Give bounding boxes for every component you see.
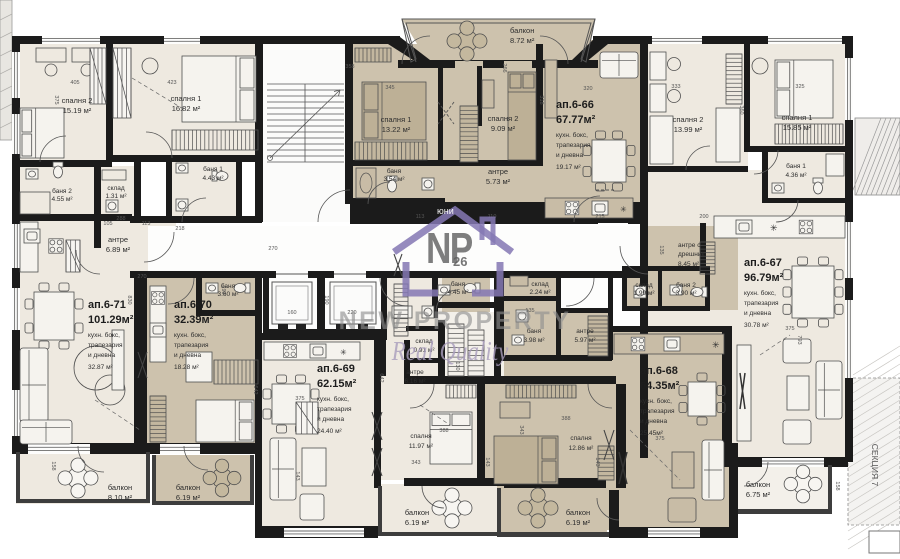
svg-text:160: 160 — [287, 310, 296, 316]
svg-text:4.36 м²: 4.36 м² — [785, 172, 807, 179]
svg-text:375: 375 — [655, 436, 664, 442]
svg-text:32.39м²: 32.39м² — [174, 314, 214, 326]
svg-text:баня 2: баня 2 — [676, 281, 696, 289]
svg-text:642: 642 — [378, 373, 384, 382]
svg-text:32.87 м²: 32.87 м² — [88, 364, 114, 371]
svg-text:антре: антре — [488, 167, 508, 176]
svg-text:24.40 м²: 24.40 м² — [317, 428, 343, 435]
svg-text:✳: ✳ — [340, 348, 347, 357]
svg-text:и дневна: и дневна — [744, 310, 771, 317]
svg-text:6.19 м²: 6.19 м² — [176, 493, 201, 502]
svg-text:642: 642 — [252, 385, 258, 394]
svg-text:26: 26 — [453, 254, 467, 269]
svg-text:190: 190 — [323, 295, 329, 304]
svg-text:375: 375 — [295, 396, 304, 402]
svg-text:склад: склад — [635, 282, 653, 289]
svg-text:67.77м²: 67.77м² — [556, 114, 596, 126]
svg-text:13.99 м²: 13.99 м² — [674, 125, 703, 134]
svg-text:ап.6-67: ап.6-67 — [744, 257, 782, 269]
svg-text:6.19 м²: 6.19 м² — [566, 518, 591, 527]
svg-text:баня: баня — [451, 280, 466, 288]
svg-text:4.43 м²: 4.43 м² — [202, 175, 224, 182]
svg-text:62.15м²: 62.15м² — [317, 378, 357, 390]
svg-text:8.45 м²: 8.45 м² — [678, 261, 700, 268]
svg-text:19.17 м²: 19.17 м² — [556, 164, 582, 171]
svg-text:трапезария: трапезария — [317, 406, 352, 413]
svg-text:антре: антре — [576, 328, 594, 335]
svg-text:ап.6-68: ап.6-68 — [640, 365, 678, 377]
svg-text:12.86 м²: 12.86 м² — [569, 445, 595, 452]
svg-text:360: 360 — [738, 105, 744, 114]
svg-text:трапезария: трапезария — [640, 408, 675, 415]
svg-text:8.72 м²: 8.72 м² — [510, 36, 535, 45]
svg-text:333: 333 — [671, 84, 680, 90]
svg-text:склад: склад — [107, 185, 125, 192]
svg-text:423: 423 — [167, 80, 176, 86]
svg-text:3.54 м²: 3.54 м² — [383, 176, 405, 183]
svg-text:345: 345 — [385, 85, 394, 91]
svg-text:NEW PROPERTY: NEW PROPERTY — [339, 307, 572, 335]
svg-text:375: 375 — [53, 95, 59, 104]
svg-text:юни: юни — [437, 206, 454, 216]
svg-text:балкон: балкон — [746, 480, 770, 489]
svg-text:15.85 м²: 15.85 м² — [783, 123, 812, 132]
svg-text:кухн. бокс,: кухн. бокс, — [317, 395, 349, 403]
svg-text:баня: баня — [387, 167, 402, 175]
svg-text:балкон: балкон — [510, 26, 534, 35]
svg-text:6.16 м²: 6.16 м² — [404, 378, 426, 385]
svg-text:5.97 м²: 5.97 м² — [574, 337, 596, 344]
svg-text:балкон: балкон — [108, 483, 132, 492]
svg-text:✳: ✳ — [620, 205, 627, 214]
svg-text:113: 113 — [142, 221, 151, 227]
svg-text:ап.6-71: ап.6-71 — [88, 299, 126, 311]
svg-text:218: 218 — [175, 226, 184, 232]
svg-text:ап.6-69: ап.6-69 — [317, 363, 355, 375]
svg-text:4.55 м²: 4.55 м² — [51, 196, 73, 203]
svg-text:358: 358 — [345, 64, 354, 70]
svg-text:1.31 м²: 1.31 м² — [105, 193, 127, 200]
svg-text:антре с: антре с — [678, 242, 701, 249]
svg-text:343: 343 — [518, 425, 524, 434]
svg-text:8.10 м²: 8.10 м² — [108, 493, 133, 502]
svg-text:и дневна: и дневна — [640, 418, 667, 425]
svg-text:830: 830 — [126, 295, 132, 304]
svg-text:трапезария: трапезария — [744, 300, 779, 307]
svg-text:793: 793 — [796, 335, 802, 344]
svg-text:325: 325 — [795, 84, 804, 90]
svg-text:9.09 м²: 9.09 м² — [491, 124, 516, 133]
svg-text:215: 215 — [595, 214, 604, 220]
svg-text:105: 105 — [103, 221, 112, 227]
svg-text:270: 270 — [268, 246, 277, 252]
svg-text:190: 190 — [220, 285, 226, 294]
svg-text:баня 2: баня 2 — [52, 187, 72, 195]
svg-text:балкон: балкон — [566, 508, 590, 517]
svg-text:143: 143 — [294, 471, 300, 480]
svg-text:270: 270 — [137, 274, 146, 280]
svg-text:и дневна: и дневна — [88, 352, 115, 359]
svg-text:343: 343 — [411, 460, 420, 466]
svg-text:266: 266 — [501, 63, 507, 72]
svg-text:и дневна: и дневна — [317, 416, 344, 423]
svg-text:158: 158 — [50, 461, 56, 470]
svg-text:143: 143 — [484, 457, 490, 466]
svg-text:спалня 1: спалня 1 — [171, 94, 202, 103]
svg-text:спалня 2: спалня 2 — [673, 115, 704, 124]
svg-text:антре: антре — [406, 369, 424, 376]
svg-text:405: 405 — [70, 80, 79, 86]
svg-text:388: 388 — [439, 428, 448, 434]
svg-text:16.82 м²: 16.82 м² — [172, 104, 201, 113]
svg-text:ап.6-66: ап.6-66 — [556, 99, 594, 111]
svg-text:баня 1: баня 1 — [203, 165, 223, 173]
svg-text:6.75 м²: 6.75 м² — [746, 490, 771, 499]
svg-text:320: 320 — [583, 86, 592, 92]
svg-text:3.98 м²: 3.98 м² — [523, 337, 545, 344]
svg-text:30.78 м²: 30.78 м² — [744, 322, 770, 329]
svg-text:склад: склад — [531, 281, 549, 288]
svg-text:6.89 м²: 6.89 м² — [106, 245, 131, 254]
svg-text:375: 375 — [785, 326, 794, 332]
svg-text:и дневна: и дневна — [556, 152, 583, 159]
svg-text:кухн. бокс,: кухн. бокс, — [744, 289, 776, 297]
svg-text:318: 318 — [538, 95, 544, 104]
svg-text:158: 158 — [834, 481, 840, 490]
svg-text:балкон: балкон — [405, 508, 429, 517]
svg-text:спалня 2: спалня 2 — [488, 114, 519, 123]
svg-text:13.22 м²: 13.22 м² — [382, 125, 411, 134]
svg-text:кухн. бокс,: кухн. бокс, — [174, 331, 206, 339]
svg-text:трапезария: трапезария — [174, 342, 209, 349]
svg-text:трапезария: трапезария — [88, 342, 123, 349]
svg-text:кухн. бокс,: кухн. бокс, — [556, 131, 588, 139]
svg-text:спалня 1: спалня 1 — [782, 113, 813, 122]
svg-text:64.35м²: 64.35м² — [640, 380, 680, 392]
svg-text:балкон: балкон — [176, 483, 200, 492]
svg-text:113: 113 — [416, 214, 425, 220]
svg-text:5.73 м²: 5.73 м² — [486, 177, 511, 186]
svg-text:и дневна: и дневна — [174, 352, 201, 359]
svg-text:6.19 м²: 6.19 м² — [405, 518, 430, 527]
svg-text:3.90 м²: 3.90 м² — [675, 290, 697, 297]
svg-text:спалня: спалня — [570, 435, 592, 442]
svg-text:388: 388 — [561, 416, 570, 422]
svg-text:1.99 м²: 1.99 м² — [633, 290, 655, 297]
svg-text:ап.6-70: ап.6-70 — [174, 299, 212, 311]
svg-text:Real Quality: Real Quality — [391, 337, 509, 366]
svg-text:кухн. бокс,: кухн. бокс, — [88, 331, 120, 339]
svg-text:✳: ✳ — [712, 340, 720, 350]
svg-text:288: 288 — [116, 216, 125, 222]
svg-text:антре: антре — [108, 235, 128, 244]
svg-text:спалня: спалня — [410, 433, 432, 440]
svg-text:143: 143 — [594, 457, 600, 466]
svg-text:2.24 м²: 2.24 м² — [529, 289, 551, 296]
svg-text:18.28 м²: 18.28 м² — [174, 364, 200, 371]
svg-text:96.79м²: 96.79м² — [744, 272, 784, 284]
svg-text:✳: ✳ — [770, 223, 778, 233]
svg-text:дрешник: дрешник — [678, 251, 704, 258]
svg-text:баня 1: баня 1 — [786, 162, 806, 170]
svg-text:спалня 2: спалня 2 — [62, 96, 93, 105]
svg-text:трапезария: трапезария — [556, 142, 591, 149]
svg-text:135: 135 — [658, 245, 664, 254]
svg-text:4.45 м²: 4.45 м² — [447, 289, 469, 296]
svg-text:101.29м²: 101.29м² — [88, 314, 134, 326]
svg-text:кухн. бокс,: кухн. бокс, — [640, 397, 672, 405]
svg-text:11.97 м²: 11.97 м² — [409, 443, 434, 450]
svg-text:спалня 1: спалня 1 — [381, 115, 412, 124]
svg-text:СЕКЦИЯ 7: СЕКЦИЯ 7 — [870, 444, 880, 487]
svg-text:15.19 м²: 15.19 м² — [63, 106, 92, 115]
svg-text:200: 200 — [699, 214, 708, 220]
